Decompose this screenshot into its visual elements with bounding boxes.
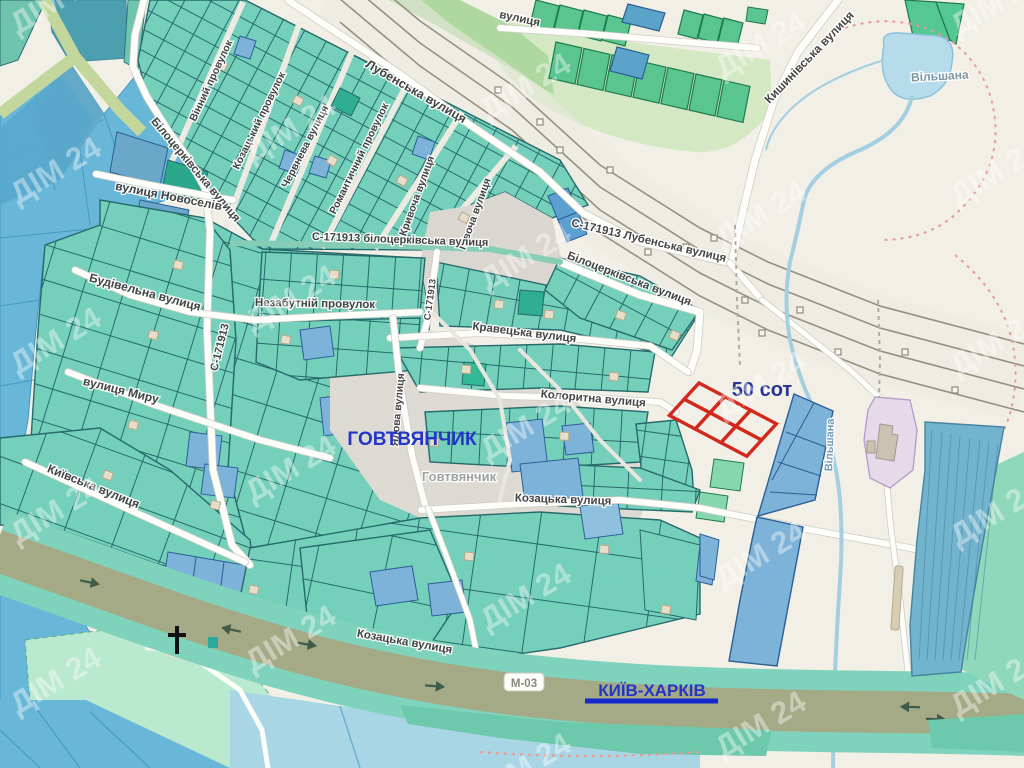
svg-text:ГОВТВЯНЧИК: ГОВТВЯНЧИК bbox=[347, 429, 477, 450]
svg-text:М-03: М-03 bbox=[511, 678, 537, 690]
svg-text:КИЇВ-ХАРКІВ: КИЇВ-ХАРКІВ bbox=[598, 681, 706, 700]
svg-text:Говтвянчик: Говтвянчик bbox=[422, 469, 497, 484]
svg-text:Вільшана: Вільшана bbox=[823, 417, 837, 471]
